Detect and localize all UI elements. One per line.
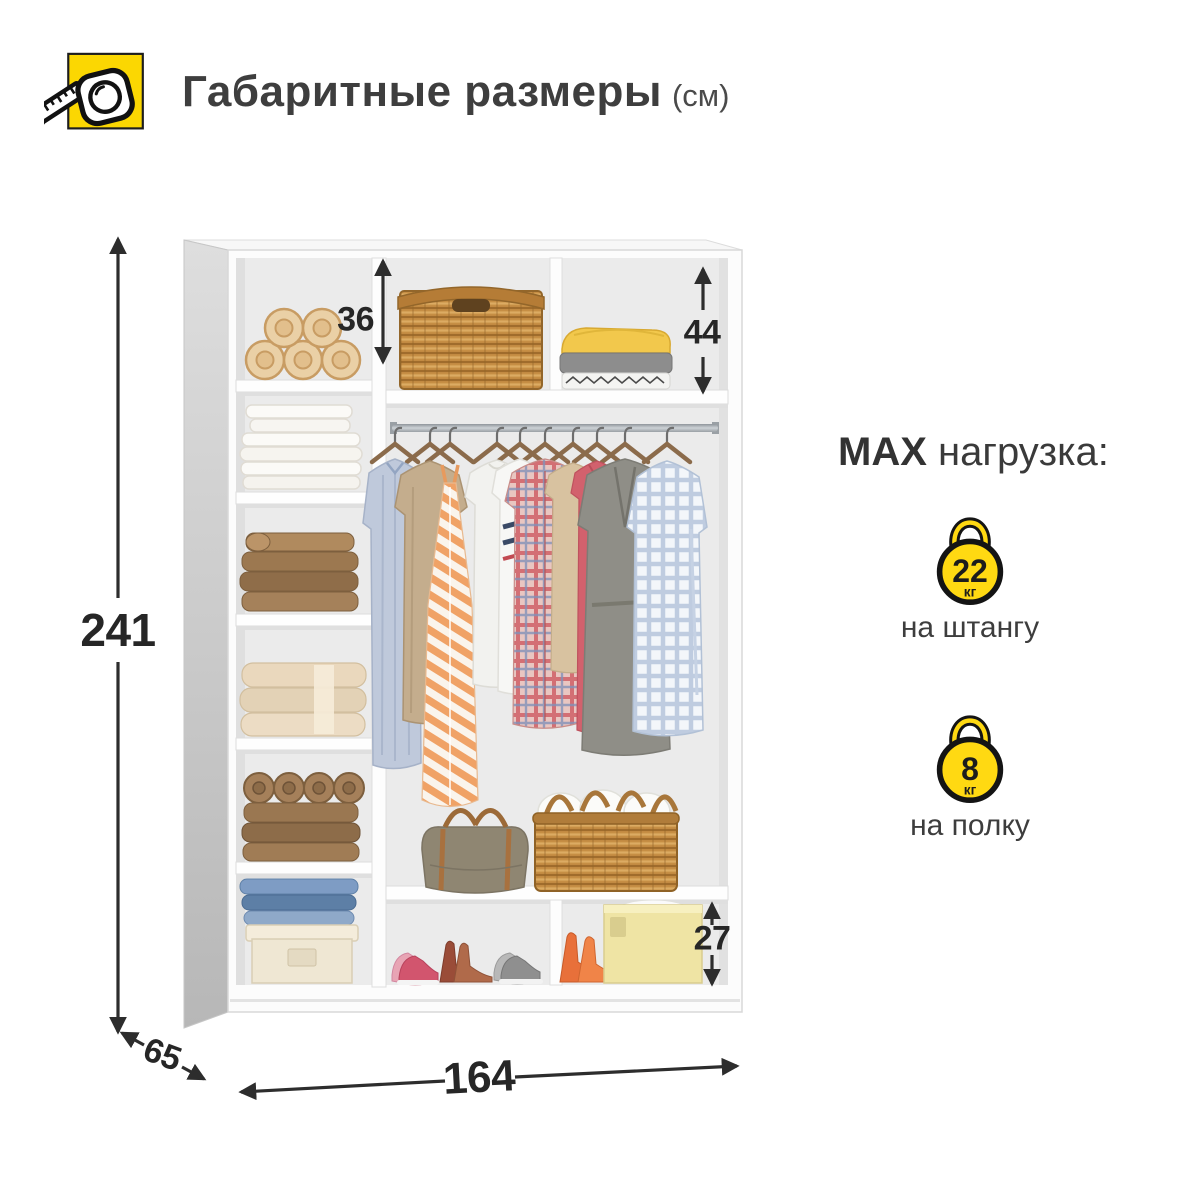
kettlebell-unit: кг [964, 585, 977, 600]
tape-measure-icon [44, 46, 148, 138]
infographic-page: Габаритные размеры(см) [0, 0, 1200, 1200]
max-load-item-rod: 22 кг на штангу [838, 503, 1102, 645]
dimension-height: 241 [80, 603, 155, 657]
dimension-top-left-shelf: 36 [337, 301, 374, 340]
max-load-label-rod: на штангу [838, 611, 1102, 645]
dimension-width: 164 [442, 1051, 516, 1105]
max-load-heading: MAX нагрузка: [838, 430, 1102, 475]
page-title-row: Габаритные размеры(см) [182, 67, 729, 117]
max-load-item-shelf: 8 кг на полку [838, 701, 1102, 843]
kettlebell-icon: 22 кг [930, 503, 1010, 607]
kettlebell-unit: кг [964, 783, 977, 798]
max-load-label-shelf: на полку [838, 809, 1102, 843]
wicker-basket-towels [533, 790, 679, 891]
header: Габаритные размеры(см) [44, 46, 729, 138]
dimension-top-right-shelf: 44 [684, 314, 721, 353]
folded-blankets [240, 663, 366, 736]
max-load-heading-bold: MAX [838, 430, 927, 474]
yellow-box [604, 900, 702, 983]
page-title: Габаритные размеры [182, 67, 662, 116]
storage-box [246, 925, 358, 983]
shirt-blue-checked [627, 461, 707, 736]
wicker-basket-top [398, 287, 544, 389]
dimension-bottom-right-shelf: 27 [694, 920, 731, 959]
max-load-panel: MAX нагрузка: 22 кг на штангу 8 кг на по… [838, 430, 1102, 843]
kettlebell-value: 22 [952, 553, 988, 589]
max-load-heading-rest: нагрузка: [938, 430, 1109, 474]
kettlebell-icon: 8 кг [930, 701, 1010, 805]
kettlebell-value: 8 [961, 751, 979, 787]
towel-rolls-stack [242, 773, 364, 861]
page-title-unit: (см) [672, 78, 729, 113]
wardrobe-illustration [100, 225, 800, 1125]
folded-towels-brown [240, 533, 358, 611]
folded-clothes-pile [560, 328, 672, 389]
folded-linens [240, 405, 362, 489]
jeans-stack [240, 879, 358, 925]
